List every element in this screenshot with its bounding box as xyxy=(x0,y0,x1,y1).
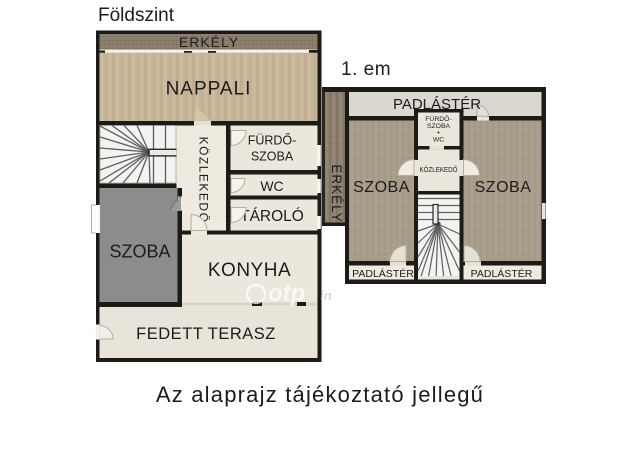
svg-text:ERKÉLY: ERKÉLY xyxy=(179,34,239,50)
svg-text:in: in xyxy=(320,288,332,303)
svg-text:TÁROLÓ: TÁROLÓ xyxy=(240,208,304,225)
svg-text:SZOBA: SZOBA xyxy=(109,242,170,262)
svg-text:SZOBA: SZOBA xyxy=(475,179,532,196)
svg-text:WC: WC xyxy=(260,178,283,194)
svg-text:FEDETT TERASZ: FEDETT TERASZ xyxy=(136,325,276,343)
svg-text:1. em: 1. em xyxy=(341,59,391,80)
svg-text:FÜRDŐ-: FÜRDŐ- xyxy=(248,133,297,148)
svg-text:SZOBA: SZOBA xyxy=(353,179,410,196)
svg-text:Földszint: Földszint xyxy=(98,5,175,26)
svg-text:KONYHA: KONYHA xyxy=(208,260,291,281)
svg-text:WC: WC xyxy=(433,137,444,144)
svg-text:FÜRDŐ-: FÜRDŐ- xyxy=(425,114,451,123)
svg-text:otp: otp xyxy=(268,280,305,307)
svg-text:Az alaprajz tájékoztató jelleg: Az alaprajz tájékoztató jellegű xyxy=(156,382,484,407)
svg-text:PADLÁSTÉR: PADLÁSTÉR xyxy=(352,267,414,280)
svg-text:ERKÉLY: ERKÉLY xyxy=(329,164,344,222)
svg-text:KÖZLEKEDŐ: KÖZLEKEDŐ xyxy=(197,137,212,224)
svg-text:PADLÁSTÉR: PADLÁSTÉR xyxy=(471,267,533,280)
svg-text:NAPPALI: NAPPALI xyxy=(166,79,252,100)
svg-text:+: + xyxy=(437,130,441,137)
svg-text:KÖZLEKEDŐ: KÖZLEKEDŐ xyxy=(420,165,458,174)
svg-text:SZOBA: SZOBA xyxy=(251,150,294,164)
